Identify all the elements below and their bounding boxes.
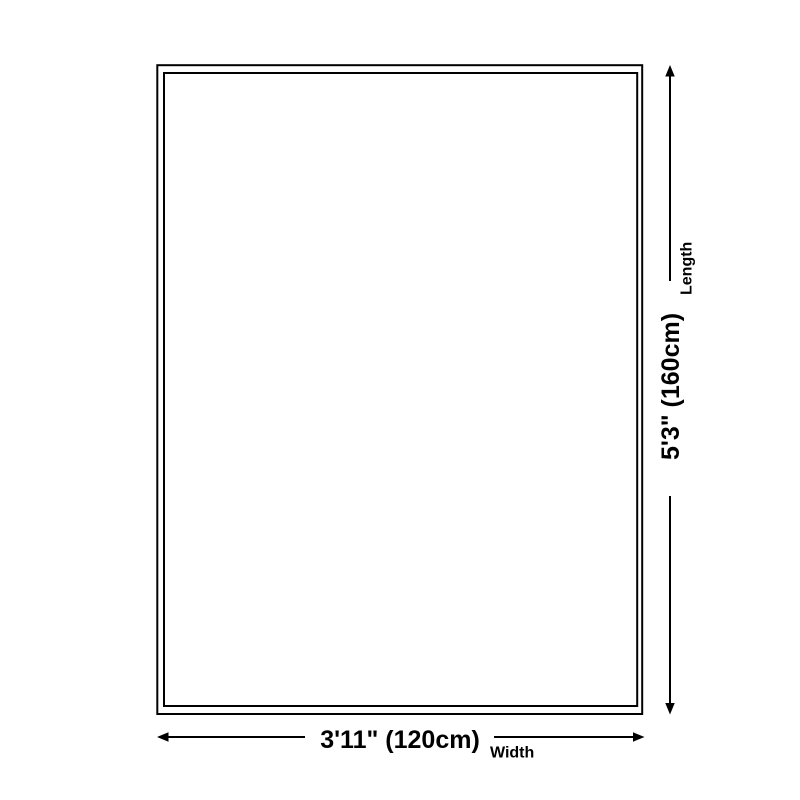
svg-text:5'3" (160cm): 5'3" (160cm): [657, 313, 685, 460]
svg-text:Width: Width: [490, 745, 534, 762]
svg-text:3'11" (120cm): 3'11" (120cm): [320, 726, 480, 754]
svg-text:Length: Length: [679, 242, 696, 295]
